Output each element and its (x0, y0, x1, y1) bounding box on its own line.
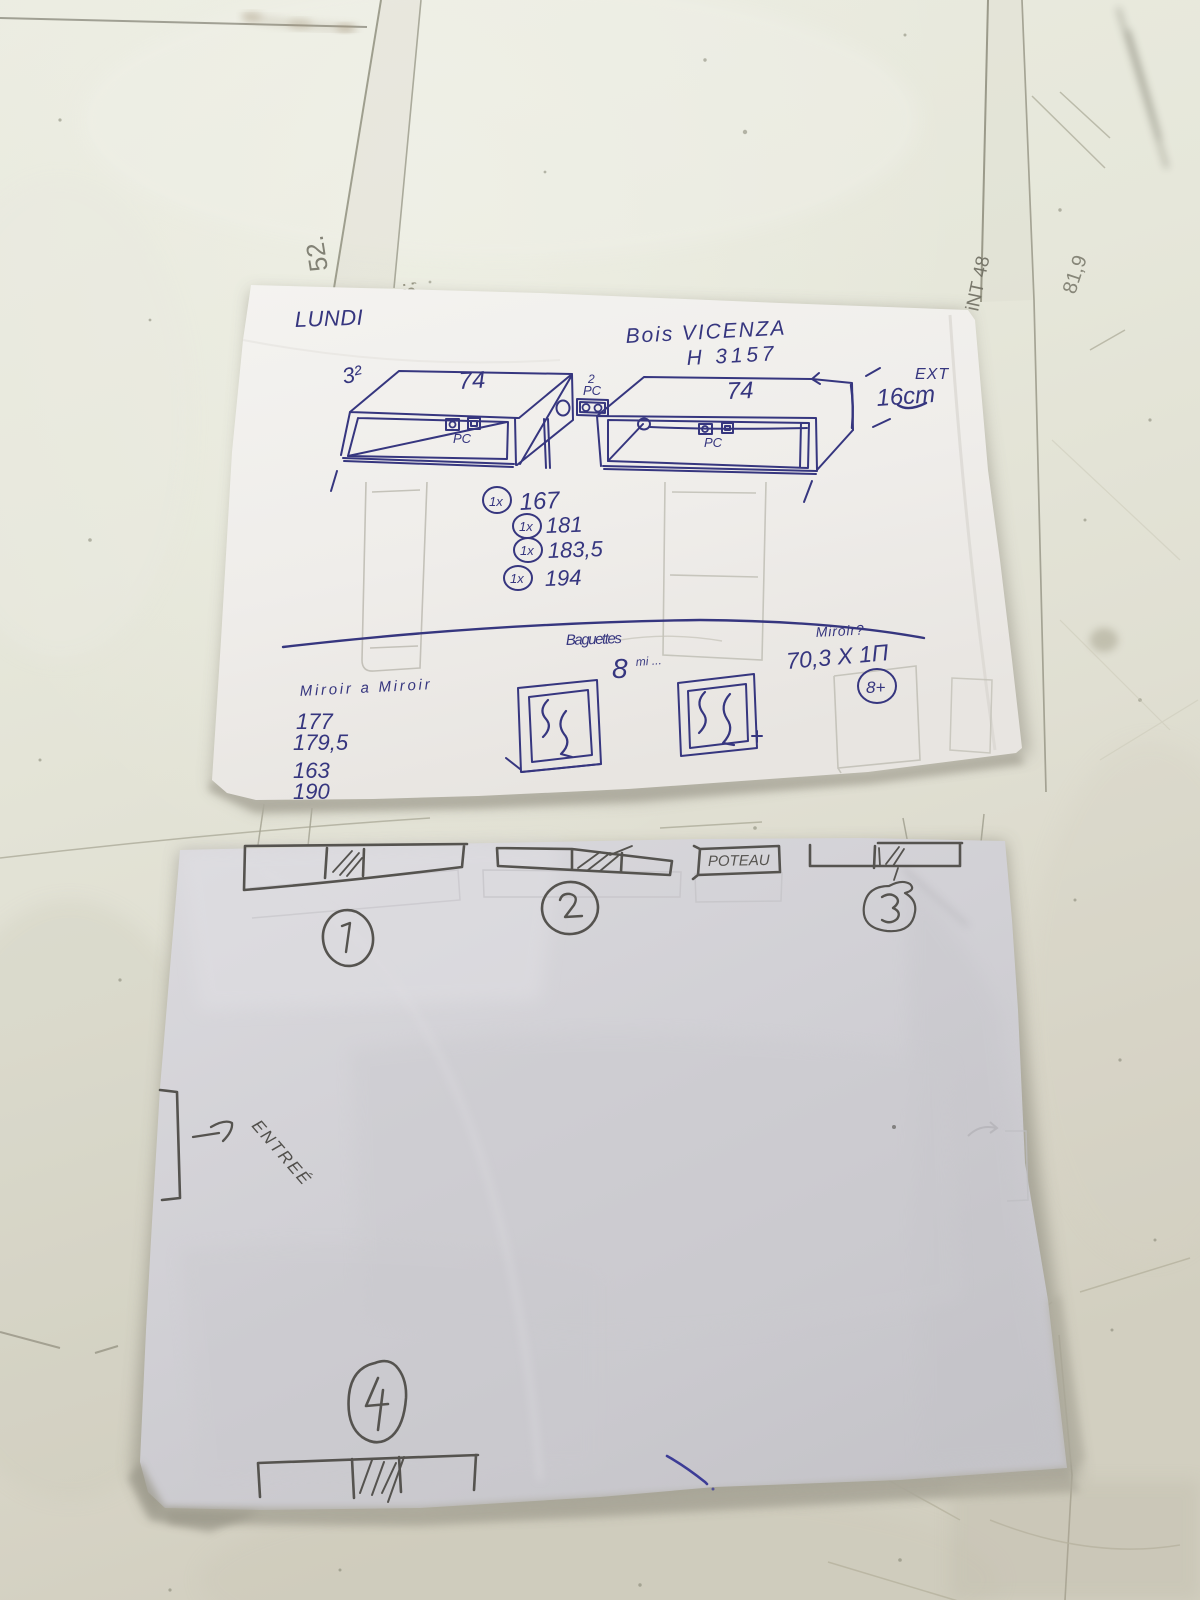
svg-text:167: 167 (519, 487, 562, 516)
svg-text:8: 8 (612, 653, 628, 684)
svg-text:POTEAU: POTEAU (708, 852, 770, 870)
svg-text:PC: PC (453, 431, 472, 446)
svg-text:52.: 52. (299, 233, 334, 273)
svg-text:181: 181 (545, 512, 583, 538)
svg-text:74: 74 (726, 377, 754, 405)
svg-text:179,5: 179,5 (293, 730, 349, 755)
svg-text:PC: PC (583, 383, 602, 398)
svg-text:8+: 8+ (866, 678, 885, 697)
svg-text:16cm: 16cm (876, 381, 936, 412)
svg-text:1x: 1x (489, 494, 503, 509)
svg-text:PC: PC (704, 435, 723, 450)
svg-text:74: 74 (458, 367, 486, 395)
svg-text:190: 190 (293, 779, 330, 804)
svg-text:LUNDI: LUNDI (294, 305, 365, 332)
svg-text:Miroir?: Miroir? (815, 621, 864, 640)
svg-text:1x: 1x (510, 571, 524, 586)
svg-text:183,5: 183,5 (547, 536, 604, 563)
svg-text:H 3157: H 3157 (686, 342, 775, 370)
svg-text:1x: 1x (520, 543, 534, 558)
svg-text:194: 194 (544, 565, 582, 591)
svg-text:1x: 1x (519, 519, 533, 534)
svg-text:Baguettes: Baguettes (566, 630, 623, 649)
svg-text:mi ...: mi ... (635, 653, 662, 669)
